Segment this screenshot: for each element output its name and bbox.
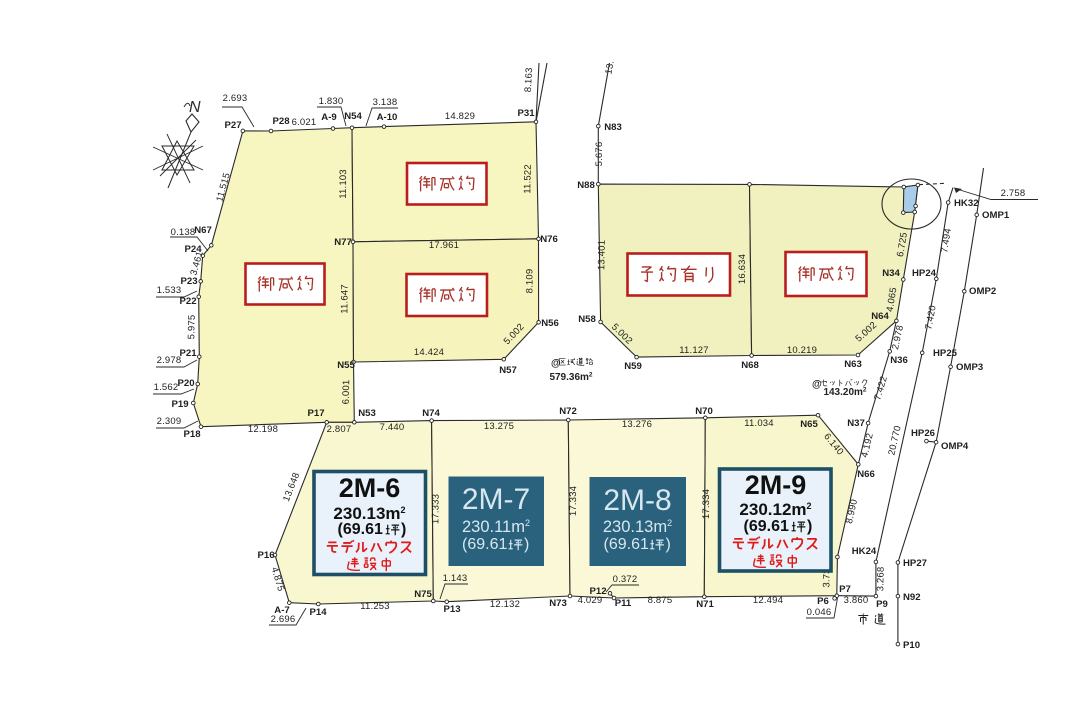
svg-text:HP24: HP24 [912, 268, 937, 279]
svg-text:230.11m2: 230.11m2 [462, 518, 530, 536]
svg-text:P20: P20 [177, 378, 194, 389]
svg-text:2.807: 2.807 [327, 424, 352, 435]
svg-text:13.275: 13.275 [484, 421, 514, 432]
svg-text:N67: N67 [194, 225, 212, 236]
svg-text:11.034: 11.034 [744, 418, 774, 429]
svg-text:11.522: 11.522 [522, 164, 534, 194]
svg-text:N57: N57 [499, 365, 517, 376]
svg-text:N77: N77 [334, 237, 352, 248]
svg-text:(69.61: (69.61 [744, 518, 789, 535]
svg-text:N76: N76 [540, 234, 558, 245]
svg-text:0.372: 0.372 [613, 574, 638, 585]
svg-text:2M-9: 2M-9 [745, 470, 807, 500]
svg-text:8.109: 8.109 [525, 269, 536, 294]
svg-text:(69.61: (69.61 [604, 536, 649, 553]
svg-text:0.138: 0.138 [171, 227, 196, 238]
svg-text:P10: P10 [903, 640, 920, 651]
svg-text:7.440: 7.440 [380, 422, 405, 433]
svg-text:N66: N66 [857, 469, 875, 480]
svg-text:5.676: 5.676 [594, 142, 605, 167]
svg-text:N64: N64 [871, 311, 889, 322]
svg-text:11.127: 11.127 [679, 345, 709, 356]
svg-text:N: N [189, 99, 201, 116]
svg-text:HP26: HP26 [911, 428, 935, 439]
svg-text:P11: P11 [615, 598, 632, 609]
svg-text:143.20m2: 143.20m2 [823, 387, 866, 399]
svg-text:6.001: 6.001 [341, 379, 352, 404]
svg-text:N56: N56 [541, 318, 559, 329]
svg-text:14.829: 14.829 [445, 111, 475, 122]
svg-text:12.198: 12.198 [248, 424, 278, 435]
svg-text:1.533: 1.533 [157, 285, 182, 296]
svg-text:A-7: A-7 [274, 605, 289, 616]
svg-text:17.334: 17.334 [568, 486, 579, 516]
svg-text:N54: N54 [344, 111, 362, 122]
svg-text:): ) [401, 521, 406, 538]
svg-text:11.103: 11.103 [338, 169, 349, 199]
svg-text:2.758: 2.758 [1001, 188, 1026, 199]
svg-text:P23: P23 [180, 276, 197, 287]
svg-text:14.424: 14.424 [414, 347, 444, 358]
svg-text:0.046: 0.046 [807, 607, 832, 618]
svg-text:P19: P19 [171, 399, 188, 410]
svg-text:7.494: 7.494 [939, 228, 954, 254]
svg-text:N70: N70 [695, 406, 713, 417]
svg-text:11.253: 11.253 [360, 601, 390, 612]
svg-text:20.770: 20.770 [886, 424, 903, 456]
svg-text:P14: P14 [309, 607, 327, 618]
svg-text:OMP2: OMP2 [969, 286, 996, 297]
svg-text:OMP4: OMP4 [941, 441, 969, 452]
svg-text:(69.61: (69.61 [338, 521, 383, 538]
svg-text:P6: P6 [817, 596, 829, 607]
svg-text:7.420: 7.420 [923, 304, 938, 330]
svg-text:P13: P13 [443, 604, 460, 615]
svg-text:P31: P31 [517, 108, 535, 119]
svg-text:N72: N72 [559, 406, 577, 417]
svg-text:2M-7: 2M-7 [462, 483, 530, 516]
svg-text:N65: N65 [800, 419, 818, 430]
svg-text:2.978: 2.978 [157, 355, 182, 366]
svg-text:P22: P22 [179, 296, 196, 307]
svg-text:2.693: 2.693 [223, 93, 248, 104]
svg-text:P16: P16 [257, 550, 274, 561]
svg-text:N71: N71 [696, 599, 714, 610]
svg-text:12.494: 12.494 [753, 595, 783, 606]
svg-text:17.334: 17.334 [701, 489, 712, 519]
svg-text:1.830: 1.830 [319, 96, 344, 107]
svg-text:N74: N74 [422, 408, 440, 419]
svg-text:P27: P27 [224, 120, 241, 131]
svg-text:12.132: 12.132 [490, 599, 520, 610]
svg-text:N73: N73 [549, 598, 567, 609]
svg-text:2M-8: 2M-8 [603, 484, 671, 517]
svg-text:): ) [666, 536, 671, 553]
svg-text:P24: P24 [184, 244, 202, 255]
svg-text:N68: N68 [741, 360, 759, 371]
svg-text:3.138: 3.138 [373, 97, 398, 108]
svg-text:1.562: 1.562 [154, 382, 179, 393]
svg-text:OMP1: OMP1 [982, 210, 1010, 221]
svg-text:4.192: 4.192 [859, 432, 875, 459]
svg-text:N55: N55 [337, 360, 355, 371]
svg-text:11.647: 11.647 [339, 284, 350, 314]
svg-text:2M-6: 2M-6 [339, 473, 401, 503]
svg-text:HP27: HP27 [903, 558, 927, 569]
svg-text:P7: P7 [839, 584, 851, 595]
svg-text:17.333: 17.333 [430, 494, 441, 524]
svg-text:HP25: HP25 [933, 348, 958, 359]
svg-text:N58: N58 [578, 314, 596, 325]
svg-text:8.875: 8.875 [648, 595, 673, 606]
svg-text:13.276: 13.276 [622, 419, 652, 430]
svg-text:N59: N59 [624, 361, 642, 372]
svg-text:579.36m2: 579.36m2 [549, 372, 592, 384]
svg-text:3.268: 3.268 [875, 566, 886, 591]
svg-text:P28: P28 [272, 116, 290, 127]
svg-text:): ) [807, 518, 812, 535]
svg-text:@: @ [812, 379, 822, 390]
svg-text:2.978: 2.978 [890, 324, 906, 351]
svg-text:): ) [524, 536, 529, 553]
svg-text:5.975: 5.975 [186, 314, 197, 339]
svg-text:N36: N36 [890, 355, 908, 366]
svg-text:N75: N75 [414, 589, 432, 600]
svg-text:13.: 13. [603, 60, 616, 76]
svg-text:N53: N53 [358, 408, 376, 419]
svg-text:17.961: 17.961 [429, 240, 459, 251]
svg-text:10.219: 10.219 [787, 345, 817, 356]
svg-text:1.143: 1.143 [443, 573, 468, 584]
svg-text:6.021: 6.021 [292, 117, 317, 128]
svg-text:A-10: A-10 [377, 112, 398, 123]
svg-text:3.860: 3.860 [844, 595, 869, 606]
svg-text:P21: P21 [179, 348, 197, 359]
svg-text:N34: N34 [882, 268, 900, 279]
svg-text:(69.61: (69.61 [462, 536, 507, 553]
svg-text:13.401: 13.401 [596, 240, 608, 270]
svg-text:N92: N92 [903, 592, 921, 603]
svg-text:7.422: 7.422 [872, 375, 890, 402]
svg-text:A-9: A-9 [321, 112, 336, 123]
svg-text:HK24: HK24 [852, 546, 877, 557]
svg-text:P18: P18 [183, 429, 201, 440]
svg-text:P17: P17 [307, 408, 324, 419]
svg-text:N88: N88 [577, 180, 595, 191]
svg-text:N83: N83 [604, 122, 622, 133]
svg-text:230.12m2: 230.12m2 [739, 500, 811, 519]
svg-text:2.309: 2.309 [157, 416, 182, 427]
svg-text:P9: P9 [876, 599, 888, 610]
svg-text:HK32: HK32 [954, 198, 979, 209]
svg-text:N37: N37 [847, 418, 865, 429]
svg-text:N63: N63 [844, 359, 862, 370]
svg-text:OMP3: OMP3 [956, 362, 983, 373]
svg-text:16.634: 16.634 [737, 254, 748, 284]
svg-text:8.163: 8.163 [523, 67, 535, 92]
svg-text:230.13m2: 230.13m2 [603, 518, 672, 536]
svg-text:P12: P12 [589, 586, 606, 597]
